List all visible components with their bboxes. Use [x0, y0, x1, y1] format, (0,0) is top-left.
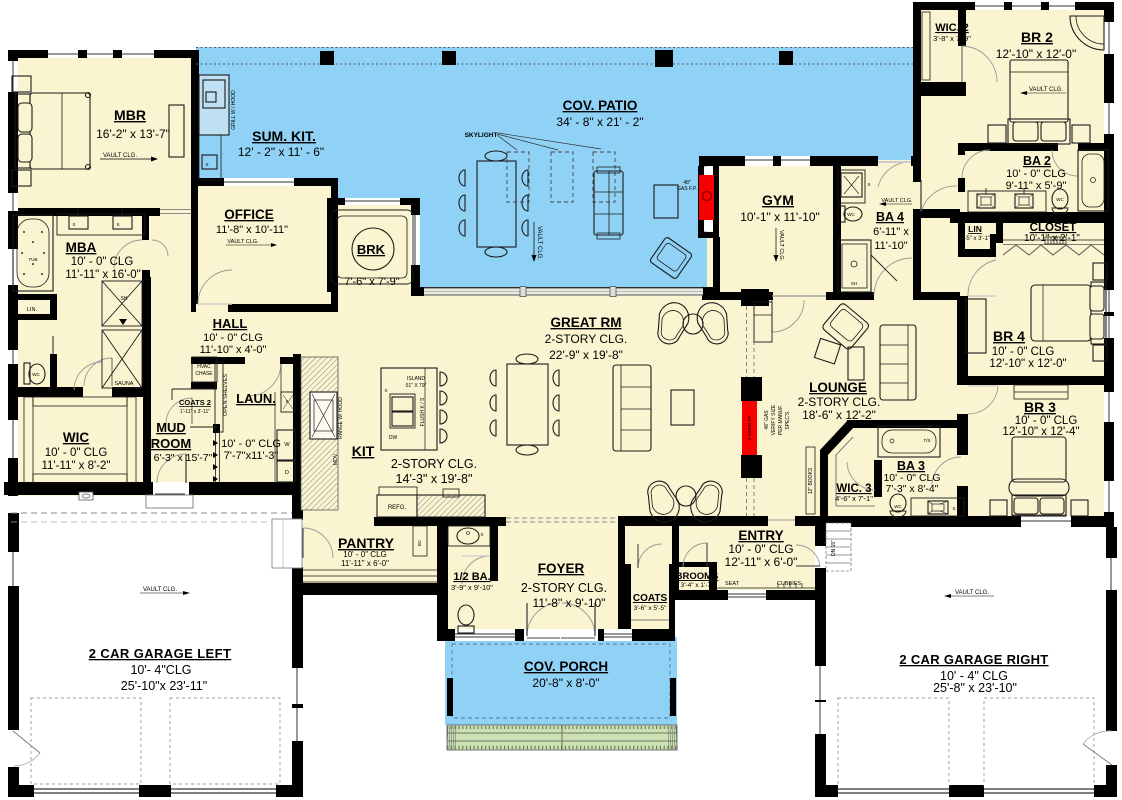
svg-text:11'-8" x 10'-11": 11'-8" x 10'-11": [216, 224, 288, 236]
svg-text:9'-11" x 5'-9": 9'-11" x 5'-9": [1006, 180, 1067, 192]
svg-text:18'-6" x 12'-2": 18'-6" x 12'-2": [802, 408, 876, 422]
svg-text:LIN.: LIN.: [27, 307, 38, 313]
svg-text:2-STORY CLG.: 2-STORY CLG.: [798, 395, 881, 409]
svg-text:2 SIDED FP: 2 SIDED FP: [747, 416, 752, 441]
svg-text:11'-11" x 16'-0": 11'-11" x 16'-0": [65, 269, 140, 281]
svg-text:2-STORY CLG.: 2-STORY CLG.: [545, 332, 628, 346]
svg-text:CUBBIES: CUBBIES: [777, 581, 801, 587]
svg-text:1'-11" x 3'-11": 1'-11" x 3'-11": [180, 409, 210, 415]
svg-text:WC: WC: [1056, 197, 1064, 202]
svg-text:WC: WC: [32, 372, 40, 377]
svg-text:RANGE W/ HOOD: RANGE W/ HOOD: [338, 397, 344, 439]
svg-text:COV. PATIO: COV. PATIO: [563, 98, 638, 113]
svg-text:SAUNA: SAUNA: [115, 381, 134, 387]
svg-text:48" GAS: 48" GAS: [764, 410, 770, 430]
svg-text:4'-6" x 7'-1": 4'-6" x 7'-1": [835, 494, 873, 503]
svg-text:2-STORY CLG.: 2-STORY CLG.: [521, 581, 607, 595]
svg-text:BROOMS: BROOMS: [676, 571, 719, 582]
svg-text:GRILL W / HOOD: GRILL W / HOOD: [231, 90, 237, 130]
svg-text:MUD: MUD: [156, 420, 186, 435]
svg-text:14'-3" x 19'-8": 14'-3" x 19'-8": [396, 472, 473, 486]
svg-text:ROOM: ROOM: [151, 436, 191, 451]
svg-text:TUB: TUB: [29, 257, 38, 262]
svg-text:LAUN.: LAUN.: [236, 391, 276, 406]
svg-text:2-STORY CLG.: 2-STORY CLG.: [391, 457, 477, 471]
svg-text:10' - 0" CLG: 10' - 0" CLG: [71, 256, 134, 268]
svg-text:VAULT CLG.: VAULT CLG.: [143, 587, 177, 593]
svg-text:W: W: [284, 442, 290, 448]
svg-text:SEAT: SEAT: [725, 581, 740, 587]
svg-text:BA 3: BA 3: [897, 459, 925, 473]
svg-text:GYM: GYM: [762, 192, 794, 208]
svg-text:7'-7"x11'-3": 7'-7"x11'-3": [224, 450, 279, 462]
svg-text:BR 4: BR 4: [993, 328, 1025, 344]
svg-text:2'-5" x 3'-1": 2'-5" x 3'-1": [960, 236, 990, 242]
svg-text:OFFICE: OFFICE: [224, 207, 274, 222]
svg-text:S: S: [116, 222, 119, 227]
svg-text:16'-2" x 13'-7": 16'-2" x 13'-7": [96, 127, 170, 141]
svg-text:10'-1" x 11'-10": 10'-1" x 11'-10": [740, 210, 820, 224]
svg-text:10' - 0" CLG: 10' - 0" CLG: [221, 438, 281, 450]
svg-text:MBA: MBA: [66, 240, 97, 255]
svg-text:11'-10" x 4'-0": 11'-10" x 4'-0": [200, 344, 267, 356]
svg-text:S: S: [285, 399, 288, 404]
svg-text:51" X 79": 51" X 79": [406, 383, 427, 389]
svg-text:CHASE: CHASE: [195, 371, 213, 377]
svg-text:SH: SH: [121, 296, 128, 302]
svg-text:12' - 2" x 11' - 6": 12' - 2" x 11' - 6": [238, 145, 324, 159]
svg-text:VAULT CLG.: VAULT CLG.: [227, 239, 259, 245]
svg-text:7'-6" x 7'-9": 7'-6" x 7'-9": [344, 276, 400, 288]
svg-text:FOYER: FOYER: [538, 561, 585, 576]
svg-text:12'-10" x 12'-4": 12'-10" x 12'-4": [1002, 426, 1079, 438]
svg-text:S: S: [952, 506, 955, 511]
svg-text:SUM. KIT.: SUM. KIT.: [252, 128, 316, 144]
svg-text:SPEC'S.: SPEC'S.: [785, 410, 791, 429]
svg-text:VAULT CLG.: VAULT CLG.: [1029, 87, 1063, 93]
svg-text:25'-10"x 23'-11": 25'-10"x 23'-11": [121, 679, 207, 693]
svg-text:11'-11" x 6'-0": 11'-11" x 6'-0": [341, 559, 389, 568]
svg-text:10' - 0" CLG: 10' - 0" CLG: [203, 332, 263, 344]
svg-text:12'-11" x 6'-0": 12'-11" x 6'-0": [725, 555, 798, 569]
svg-text:BA 4: BA 4: [876, 210, 904, 224]
svg-text:VAULT CLG.: VAULT CLG.: [536, 226, 542, 260]
svg-text:COV. PORCH: COV. PORCH: [524, 659, 608, 674]
svg-text:3'-4" x 1'-7": 3'-4" x 1'-7": [681, 582, 714, 589]
svg-text:MBR: MBR: [114, 107, 146, 123]
svg-text:PANTRY: PANTRY: [338, 535, 395, 551]
svg-text:1/2 BA.: 1/2 BA.: [453, 571, 490, 583]
svg-text:FLUSH K / S: FLUSH K / S: [420, 397, 426, 426]
svg-text:ISLAND: ISLAND: [407, 376, 425, 382]
svg-text:BR 3: BR 3: [1024, 399, 1056, 415]
svg-text:6'-3" x 15'-7": 6'-3" x 15'-7": [154, 452, 213, 464]
svg-text:11'-11" x 8'-2": 11'-11" x 8'-2": [41, 460, 110, 472]
svg-text:WIC. 2: WIC. 2: [935, 22, 969, 34]
svg-text:10' - 0" CLG: 10' - 0" CLG: [728, 542, 793, 556]
svg-text:BR 2: BR 2: [1021, 29, 1053, 45]
svg-text:GAS F.P.: GAS F.P.: [677, 186, 697, 192]
svg-text:MOV.: MOV.: [333, 453, 339, 465]
svg-text:DN 15": DN 15": [831, 540, 837, 556]
svg-text:S: S: [72, 222, 75, 227]
svg-text:10'-1" x 2'-1": 10'-1" x 2'-1": [1024, 233, 1080, 244]
svg-text:WC: WC: [847, 212, 855, 217]
svg-text:LOUNGE: LOUNGE: [809, 380, 867, 395]
svg-text:KIT: KIT: [352, 443, 375, 459]
svg-text:DW: DW: [389, 435, 398, 441]
svg-text:6'-11" x: 6'-11" x: [873, 226, 909, 238]
svg-text:D: D: [285, 470, 289, 476]
svg-text:ENTRY: ENTRY: [738, 528, 783, 543]
svg-text:WC: WC: [894, 504, 902, 509]
svg-text:3'-6" x 5'-5": 3'-6" x 5'-5": [634, 605, 667, 612]
svg-text:11'-10": 11'-10": [874, 240, 907, 252]
svg-text:VAULT CLG.: VAULT CLG.: [955, 590, 989, 596]
svg-text:3'-8" x 7'-9": 3'-8" x 7'-9": [933, 34, 971, 43]
svg-text:3'-9" x 9'-10": 3'-9" x 9'-10": [451, 583, 493, 592]
svg-text:PER MANUF.: PER MANUF.: [778, 405, 784, 435]
svg-text:S: S: [384, 388, 387, 393]
svg-text:12'-10" x 12'-0": 12'-10" x 12'-0": [989, 358, 1066, 370]
svg-text:BC: BC: [417, 539, 422, 546]
svg-text:LIN: LIN: [968, 224, 982, 234]
svg-text:2 CAR GARAGE LEFT: 2 CAR GARAGE LEFT: [89, 646, 232, 661]
svg-text:10' - 0" CLG: 10' - 0" CLG: [1006, 168, 1066, 180]
svg-text:S: S: [205, 162, 208, 167]
svg-text:2 CAR GARAGE RIGHT: 2 CAR GARAGE RIGHT: [899, 652, 1048, 667]
svg-text:REFG.: REFG.: [388, 505, 407, 511]
svg-text:12'-10" x 12'-0": 12'-10" x 12'-0": [996, 47, 1076, 61]
svg-text:VAULT CLG.: VAULT CLG.: [778, 230, 784, 262]
svg-text:7'-3" x 8'-4": 7'-3" x 8'-4": [886, 483, 939, 495]
svg-text:25'-8" x 23'-10": 25'-8" x 23'-10": [933, 681, 1017, 695]
svg-text:10'- 4"CLG: 10'- 4"CLG: [130, 663, 191, 677]
svg-text:HVAC: HVAC: [197, 364, 211, 370]
svg-text:22'-9" x 19'-8": 22'-9" x 19'-8": [549, 348, 623, 362]
svg-text:12" BOOKS: 12" BOOKS: [808, 467, 814, 494]
svg-text:COATS: COATS: [633, 593, 668, 604]
svg-text:20'-8" x 8'-0": 20'-8" x 8'-0": [532, 676, 599, 690]
svg-text:VAULT CLG.: VAULT CLG.: [881, 198, 913, 204]
svg-text:SKYLIGHT: SKYLIGHT: [465, 132, 498, 139]
svg-text:HALL: HALL: [213, 316, 248, 331]
svg-text:GREAT RM: GREAT RM: [551, 315, 622, 330]
svg-text:S: S: [480, 532, 483, 537]
svg-text:BRK: BRK: [357, 242, 386, 257]
svg-text:10' - 0" CLG: 10' - 0" CLG: [45, 447, 108, 459]
svg-text:10' - 0" CLG: 10' - 0" CLG: [343, 550, 387, 559]
svg-text:BA 2: BA 2: [1023, 154, 1051, 168]
svg-text:SH: SH: [851, 281, 857, 286]
svg-text:COATS 2: COATS 2: [179, 398, 211, 407]
svg-text:34' - 8" x 21' - 2": 34' - 8" x 21' - 2": [556, 115, 643, 129]
svg-text:WIC: WIC: [63, 430, 89, 445]
svg-text:S: S: [867, 182, 870, 187]
svg-text:VAULT CLG.: VAULT CLG.: [103, 153, 137, 159]
svg-text:T/S: T/S: [923, 438, 930, 443]
svg-text:VERIFY SIZE: VERIFY SIZE: [771, 404, 777, 435]
svg-text:11'-8" x 9'-10": 11'-8" x 9'-10": [533, 596, 606, 610]
svg-text:10' - 0" CLG: 10' - 0" CLG: [992, 346, 1055, 358]
svg-text:OPEN SHELVES: OPEN SHELVES: [223, 374, 229, 416]
